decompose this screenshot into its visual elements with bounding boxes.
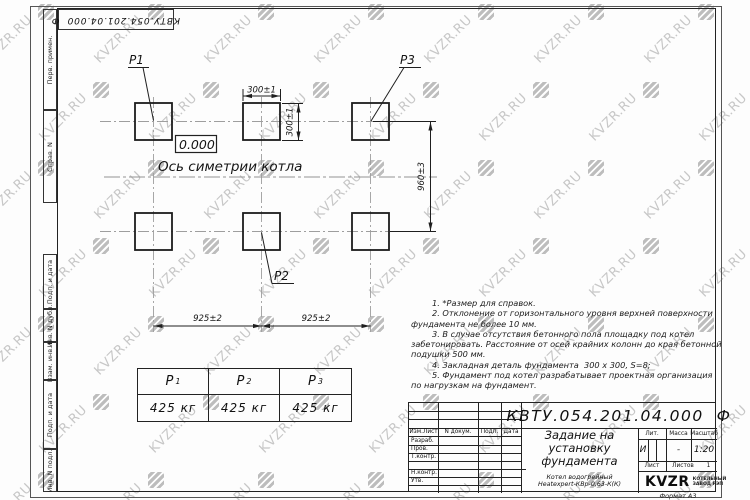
tb-doc-number: КВТУ.054.201.04.000 Ф — [521, 403, 717, 428]
tb-sheet-label: Лист — [638, 461, 666, 471]
load-value-p1: 425 кг — [138, 395, 209, 421]
leader-p3 — [371, 68, 421, 122]
tb-mass-label: Масса — [666, 428, 691, 439]
tb-header-n-dokum: N докум. — [438, 428, 478, 436]
dim-col-span-2: 925±2 — [302, 314, 331, 324]
note-line: 3. В случае отсутствия бетонного пола пл… — [411, 329, 716, 339]
leader-p1 — [128, 68, 154, 121]
format-label: Формат А3 — [628, 492, 728, 500]
dim-row-span: 960±3 — [417, 162, 427, 191]
symmetry-axis-label: Ось симетрии котла — [158, 159, 302, 175]
note-line: 4. Закладная деталь фундамента 300 х 300… — [411, 360, 716, 370]
arrow — [154, 324, 163, 328]
load-value-p2: 425 кг — [209, 395, 280, 421]
tb-header-podp: Подп. — [478, 428, 501, 436]
arrow — [428, 223, 432, 232]
load-table: Р1 Р2 Р3 425 кг 425 кг 425 кг — [137, 368, 352, 422]
tb-sheets-label: Листов — [666, 461, 700, 471]
note-line: забетонировать. Расстояние от осей крайн… — [411, 339, 716, 349]
arrow — [253, 324, 262, 328]
tb-row-nkontr: Н.контр. — [409, 469, 438, 477]
dim-col-span-1: 925±2 — [193, 314, 222, 324]
arrow — [262, 324, 271, 328]
tb-header-izm-list: Изм.Лист — [409, 428, 438, 436]
load-table-header-p2: Р2 — [209, 369, 280, 395]
load-table-header-p1: Р1 — [138, 369, 209, 395]
tb-row-prov: Пров. — [409, 445, 438, 453]
tb-header-data: Дата — [501, 428, 521, 436]
tb-scale-label: Масштаб — [691, 428, 717, 439]
load-table-header-p3: Р3 — [280, 369, 351, 395]
title-block: Изм.Лист N докум. Подп. Дата Разраб. Про… — [408, 402, 716, 492]
arrow — [296, 104, 300, 113]
note-line: 2. Отклонение от горизонтального уровня … — [411, 308, 716, 318]
note-line: подушки 500 мм. — [411, 349, 716, 359]
note-line: 5. Фундамент под котел разрабатывает про… — [411, 370, 716, 380]
note-line: 1. *Размер для справок. — [411, 298, 716, 308]
arrow — [428, 122, 432, 131]
tb-product-name: Котел водогрейный Heatexpert-КВр-0,63-К(… — [521, 469, 638, 493]
label-p3: P3 — [400, 53, 415, 67]
tb-sheets-value: 1 — [700, 461, 717, 471]
notes-block: 1. *Размер для справок. 2. Отклонение от… — [411, 298, 716, 391]
tb-lit-value: И — [638, 439, 648, 461]
label-p2: P2 — [274, 269, 289, 283]
dim-pad-height: 300±1 — [286, 108, 296, 137]
kvzr-logo-caption: КОТЕЛЬНЫЙ ЗАВОД РЭП — [693, 477, 727, 488]
load-value-p3: 425 кг — [280, 395, 351, 421]
tb-row-tkontr: Т.контр. — [409, 453, 438, 461]
tb-mass-value: - — [666, 439, 691, 461]
tb-lit-label: Лит. — [638, 428, 666, 439]
label-p1: P1 — [129, 53, 144, 67]
note-line: фундамента не более 10 мм. — [411, 319, 716, 329]
arrow — [362, 324, 371, 328]
tb-scale-value: 1:20 — [691, 439, 717, 461]
tb-row-utv: Утв. — [409, 477, 438, 485]
tb-document-title: Задание на установку фундамента — [521, 428, 638, 469]
elevation-value: 0.000 — [179, 137, 215, 152]
kvzr-logo-text: KVZR — [645, 474, 690, 490]
note-line: по нагрузкам на фундамент. — [411, 380, 716, 390]
arrow — [296, 132, 300, 141]
tb-row-razrab: Разраб. — [409, 436, 438, 445]
dim-pad-width: 300±1 — [247, 86, 276, 96]
tb-row-blank — [409, 461, 438, 469]
drawing-sheet: KVZR.RUKVZR.RUKVZR.RUKVZR.RUKVZR.RUKVZR.… — [0, 0, 750, 500]
tb-logo: KVZR КОТЕЛЬНЫЙ ЗАВОД РЭП — [642, 473, 715, 491]
